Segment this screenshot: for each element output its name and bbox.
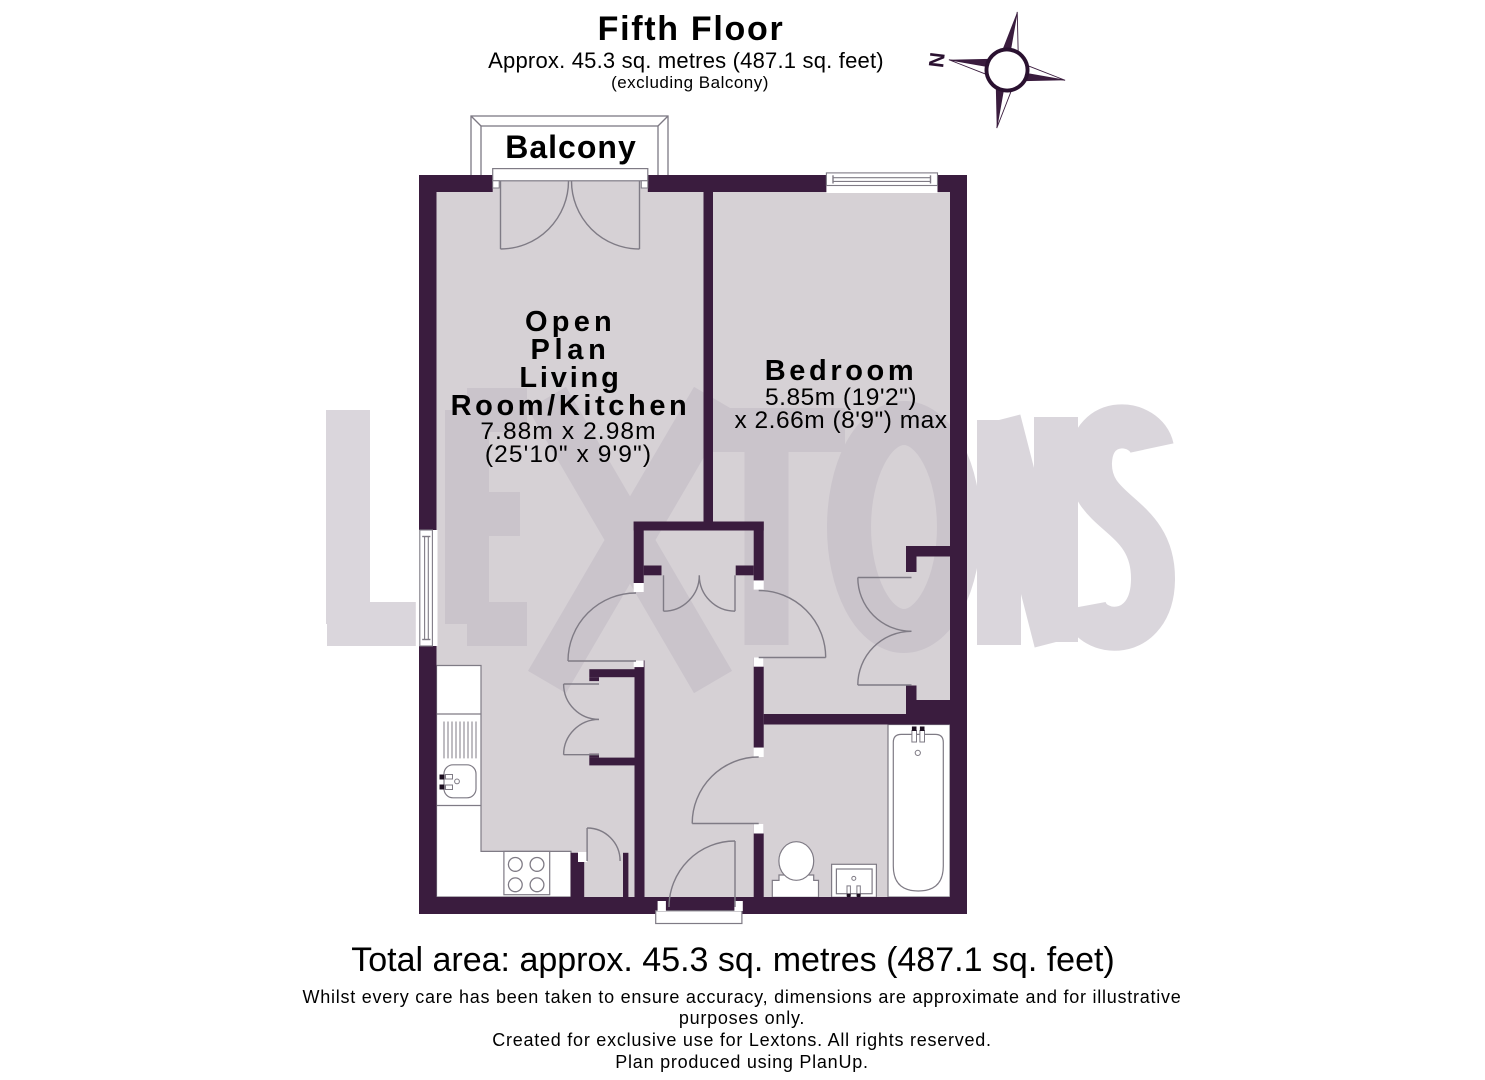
svg-text:N: N xyxy=(925,51,950,69)
